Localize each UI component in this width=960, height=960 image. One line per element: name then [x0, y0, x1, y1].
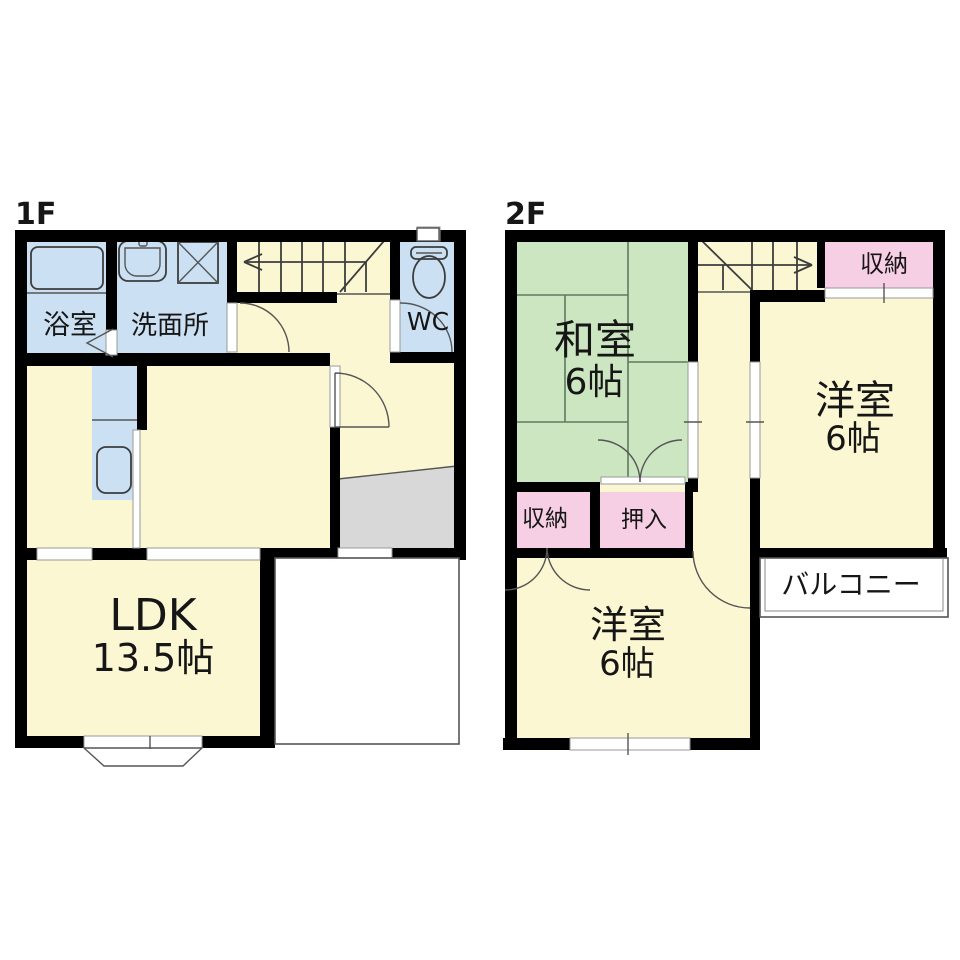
washroom-door-gap — [227, 303, 237, 352]
label-oshiire: 押入 — [621, 507, 667, 533]
label-wc: WC — [407, 307, 449, 336]
label-closet-north: 収納 — [860, 250, 908, 278]
wc-door-gap — [390, 300, 400, 352]
label-washitsu-size: 6帖 — [565, 362, 624, 403]
label-closet-west: 収納 — [522, 506, 568, 532]
label-balcony: バルコニー — [781, 568, 920, 601]
label-washitsu: 和室 — [554, 316, 636, 364]
closet-north-sliding-door — [825, 288, 933, 298]
label-yoshitsu-east-size: 6帖 — [825, 419, 881, 459]
yoshitsu-east-sliding-door — [750, 362, 760, 478]
floor-2f: 2F 和室 6帖 洋室 6帖 収納 収納 押入 洋室 6帖 バルコニー — [503, 197, 948, 755]
ldk-opening — [37, 548, 92, 560]
bath-door-gap — [106, 330, 117, 355]
kitchen-partition — [133, 430, 140, 548]
floor-1f: 1F 浴室 洗面所 WC LDK 13.5帖 — [15, 197, 466, 766]
south-window — [570, 738, 690, 750]
floorplan-page: 1F 浴室 洗面所 WC LDK 13.5帖 — [0, 0, 960, 960]
genkan-area — [338, 466, 457, 548]
porch — [275, 558, 459, 744]
bay-window — [84, 736, 202, 766]
label-bath: 浴室 — [43, 310, 97, 341]
label-yoshitsu-south-size: 6帖 — [599, 644, 655, 684]
floor-label-2f: 2F — [505, 197, 546, 232]
label-yoshitsu-east: 洋室 — [815, 378, 895, 424]
label-washroom: 洗面所 — [131, 311, 209, 341]
label-ldk: LDK — [109, 590, 197, 641]
floor-label-1f: 1F — [15, 197, 56, 232]
label-yoshitsu-south: 洋室 — [590, 603, 666, 647]
label-ldk-size: 13.5帖 — [92, 636, 215, 680]
oshiire-door-track — [601, 477, 685, 484]
ldk-opening — [147, 548, 260, 560]
washitsu-sliding-door — [688, 362, 698, 478]
floorplan-svg: 1F 浴室 洗面所 WC LDK 13.5帖 — [0, 0, 960, 960]
wc-window — [417, 227, 440, 241]
